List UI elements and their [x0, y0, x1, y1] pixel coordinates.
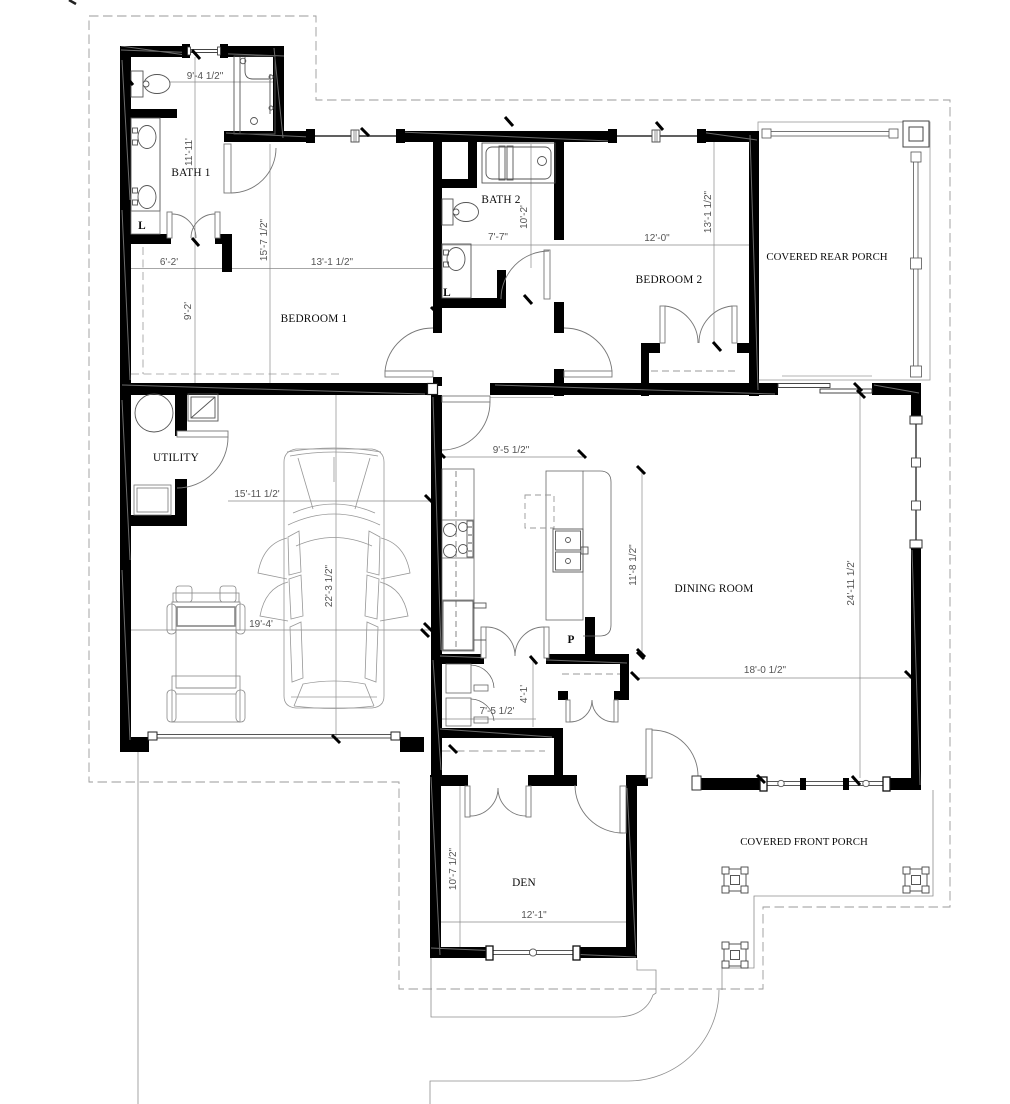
svg-text:L: L — [443, 287, 451, 299]
svg-text:DEN: DEN — [512, 877, 536, 889]
svg-text:12'-1": 12'-1" — [521, 910, 547, 921]
svg-text:18'-0 1/2": 18'-0 1/2" — [744, 665, 787, 676]
svg-text:9'-2': 9'-2' — [183, 302, 194, 320]
svg-text:BEDROOM 1: BEDROOM 1 — [281, 313, 348, 325]
svg-text:BEDROOM 2: BEDROOM 2 — [636, 274, 703, 286]
svg-text:10'-7 1/2": 10'-7 1/2" — [448, 847, 459, 890]
svg-text:11'-11': 11'-11' — [184, 138, 195, 166]
svg-text:6'-2': 6'-2' — [160, 257, 178, 268]
svg-text:9'-4 1/2": 9'-4 1/2" — [187, 71, 224, 82]
svg-text:BATH 2: BATH 2 — [481, 194, 520, 206]
svg-text:13'-1 1/2": 13'-1 1/2" — [703, 190, 714, 233]
svg-text:24'-11 1/2': 24'-11 1/2' — [846, 560, 857, 605]
svg-text:7'-5 1/2': 7'-5 1/2' — [480, 706, 515, 717]
svg-text:7'-7": 7'-7" — [488, 232, 508, 243]
svg-text:L: L — [138, 220, 146, 232]
svg-text:UTILITY: UTILITY — [153, 452, 199, 464]
svg-text:P: P — [567, 634, 574, 646]
svg-text:9'-5 1/2": 9'-5 1/2" — [493, 445, 530, 456]
svg-text:10'-2': 10'-2' — [519, 205, 530, 229]
svg-text:4'-1': 4'-1' — [519, 685, 530, 703]
svg-text:DINING ROOM: DINING ROOM — [674, 583, 753, 595]
svg-text:15'-7 1/2": 15'-7 1/2" — [259, 218, 270, 261]
svg-text:15'-11 1/2': 15'-11 1/2' — [234, 489, 279, 500]
svg-text:13'-1 1/2": 13'-1 1/2" — [311, 257, 354, 268]
svg-text:COVERED REAR PORCH: COVERED REAR PORCH — [766, 251, 887, 263]
svg-text:COVERED FRONT PORCH: COVERED FRONT PORCH — [740, 836, 868, 848]
svg-text:22'-3 1/2": 22'-3 1/2" — [324, 564, 335, 607]
svg-text:11'-8 1/2": 11'-8 1/2" — [628, 544, 639, 586]
svg-text:BATH 1: BATH 1 — [171, 167, 210, 179]
svg-text:12'-0": 12'-0" — [644, 233, 670, 244]
svg-text:19'-4': 19'-4' — [249, 619, 273, 630]
